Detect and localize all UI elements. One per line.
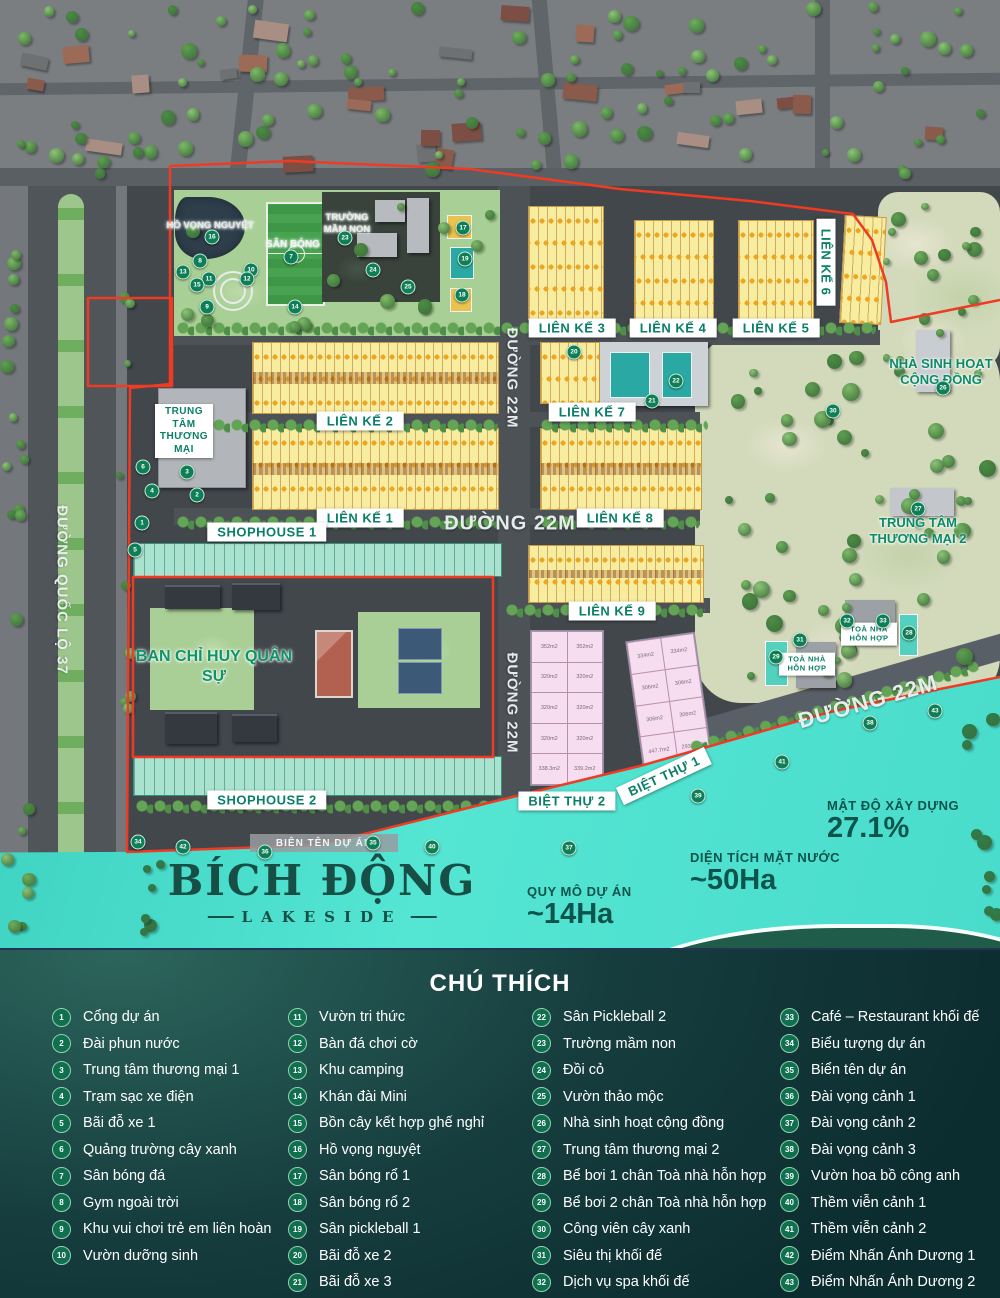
tree <box>178 141 193 156</box>
map-marker-12: 12 <box>240 272 255 287</box>
map-marker-43: 43 <box>928 704 943 719</box>
legend-number: 31 <box>532 1246 551 1265</box>
map-marker-28: 28 <box>902 626 917 641</box>
zone-label: LIÊN KẾ 3 <box>529 319 616 338</box>
legend-number: 33 <box>780 1008 799 1027</box>
map-marker-8: 8 <box>193 254 208 269</box>
villa-plot: 306m2 <box>665 665 701 700</box>
tree <box>827 354 842 369</box>
legend-item-label: Nhà sinh hoạt cộng đồng <box>563 1115 724 1131</box>
legend-item-label: Đài vọng cảnh 1 <box>811 1089 916 1105</box>
legend-number: 28 <box>532 1167 551 1186</box>
map-marker-37: 37 <box>562 841 577 856</box>
map-marker-15: 15 <box>190 278 205 293</box>
zone-label: LIÊN KẾ 5 <box>733 319 820 338</box>
tree <box>262 114 274 126</box>
legend-item-label: Thềm viễn cảnh 1 <box>811 1195 926 1211</box>
legend-number: 15 <box>288 1114 307 1133</box>
legend-item-33: 33Café – Restaurant khối đế <box>780 1004 979 1031</box>
tree <box>161 110 176 125</box>
legend-item-2: 2Đài phun nước <box>52 1031 271 1058</box>
legend-item-20: 20Bãi đỗ xe 2 <box>288 1243 484 1270</box>
legend-item-13: 13Khu camping <box>288 1057 484 1084</box>
block-lk2 <box>252 342 499 414</box>
legend-number: 12 <box>288 1034 307 1053</box>
tree <box>512 31 526 45</box>
stat-label: MẬT ĐỘ XÂY DỰNG <box>827 798 959 813</box>
tree <box>538 132 551 145</box>
zone-label: LIÊN KẾ 7 <box>549 403 636 422</box>
legend-number: 29 <box>532 1193 551 1212</box>
tree <box>776 541 788 553</box>
villa-plot: 320m2 <box>568 663 603 693</box>
tree <box>979 460 996 477</box>
stat: DIỆN TÍCH MẶT NƯỚC~50Ha <box>690 850 840 895</box>
block-lk9 <box>528 545 704 603</box>
block-lk3 <box>528 206 604 320</box>
legend-item-label: Thềm viễn cảnh 2 <box>811 1221 926 1237</box>
tree <box>984 871 995 882</box>
legend-item-label: Hồ vọng nguyệt <box>319 1142 421 1158</box>
tree <box>411 2 424 15</box>
tree <box>125 299 134 308</box>
tree <box>873 28 880 35</box>
tree <box>24 141 36 153</box>
area-label: TRUNG TÂM THƯƠNG MẠI 2 <box>848 515 988 548</box>
tree <box>664 97 673 106</box>
map-marker-33: 33 <box>876 614 891 629</box>
legend-item-30: 30Công viên cây xanh <box>532 1216 766 1243</box>
tree <box>375 108 389 122</box>
legend-item-label: Trung tâm thương mại 1 <box>83 1062 240 1078</box>
block-lk5 <box>738 220 814 322</box>
tree <box>968 295 979 306</box>
legend-item-label: Vườn thảo mộc <box>563 1089 664 1105</box>
zone-label: LIÊN KẾ 4 <box>630 319 717 338</box>
map-marker-40: 40 <box>425 840 440 855</box>
tree <box>250 67 265 82</box>
villa-plot: 320m2 <box>568 693 603 723</box>
legend-number: 16 <box>288 1140 307 1159</box>
legend-item-5: 5Bãi đỗ xe 1 <box>52 1110 271 1137</box>
tree <box>344 65 357 78</box>
villa-plot: 352m2 <box>532 632 567 662</box>
villa-block-2: 352m2352m2320m2320m2320m2320m2320m2320m2… <box>530 630 604 786</box>
tree <box>914 251 928 265</box>
house <box>575 24 594 43</box>
legend-item-label: Đồi cỏ <box>563 1062 604 1078</box>
sign-text: BIÊN TÊN DỰ ÁN <box>276 838 372 849</box>
tree <box>0 360 14 374</box>
map-marker-27: 27 <box>911 502 926 517</box>
legend-number: 25 <box>532 1087 551 1106</box>
tree <box>141 914 150 923</box>
legend-item-label: Sân bóng rổ 2 <box>319 1195 410 1211</box>
legend-number: 24 <box>532 1061 551 1080</box>
tree <box>960 44 973 57</box>
tree <box>920 31 936 47</box>
zone-label: LIÊN KẾ 6 <box>817 219 836 306</box>
tree <box>327 274 340 287</box>
tree <box>691 50 704 63</box>
villa-plot: 320m2 <box>568 724 603 754</box>
tree <box>758 45 766 53</box>
legend-number: 10 <box>52 1246 71 1265</box>
map-marker-41: 41 <box>775 755 790 770</box>
stat: MẬT ĐỘ XÂY DỰNG27.1% <box>827 798 959 843</box>
legend-item-34: 34Biểu tượng dự án <box>780 1031 979 1058</box>
tree <box>986 713 1000 727</box>
house <box>420 130 440 146</box>
legend-item-label: Bãi đỗ xe 3 <box>319 1274 392 1290</box>
legend-number: 42 <box>780 1246 799 1265</box>
hq-building <box>232 583 280 610</box>
legend-item-23: 23Trường mầm non <box>532 1031 766 1058</box>
legend-item-38: 38Đài vọng cảnh 3 <box>780 1137 979 1164</box>
map-marker-35: 35 <box>366 836 381 851</box>
tree <box>388 69 395 76</box>
tree <box>1 853 14 866</box>
house <box>62 45 89 64</box>
tree <box>289 321 300 332</box>
legend-item-29: 29Bể bơi 2 chân Toà nhà hỗn hợp <box>532 1190 766 1217</box>
legend-item-label: Sân bóng đá <box>83 1168 165 1184</box>
legend-number: 4 <box>52 1087 71 1106</box>
tree <box>425 162 439 176</box>
villa-plot: 306m2 <box>632 670 668 705</box>
map-marker-20: 20 <box>567 345 582 360</box>
zone-label: SHOPHOUSE 2 <box>207 791 326 810</box>
legend-item-10: 10Vườn dưỡng sinh <box>52 1243 271 1270</box>
tree <box>438 222 450 234</box>
map-marker-29: 29 <box>769 650 784 665</box>
tree <box>75 133 86 144</box>
legend-item-39: 39Vườn hoa bồ công anh <box>780 1163 979 1190</box>
tree <box>962 724 977 739</box>
map-marker-30: 30 <box>826 404 841 419</box>
legend-item-label: Sân Pickleball 2 <box>563 1009 666 1025</box>
pickleball-court-2 <box>610 352 650 398</box>
area-label: BAN CHỈ HUY QUÂN SỰ <box>134 647 294 687</box>
hq-building <box>232 714 277 742</box>
logo-title: BÍCH ĐỘNG <box>168 860 476 902</box>
hq-building <box>165 712 217 744</box>
map-marker-2: 2 <box>190 488 205 503</box>
legend-column-2: 11Vườn tri thức12Bàn đá chơi cờ13Khu cam… <box>288 1004 484 1296</box>
tree <box>710 115 721 126</box>
tree <box>601 107 613 119</box>
legend-number: 5 <box>52 1114 71 1133</box>
legend-item-label: Vườn dưỡng sinh <box>83 1248 198 1264</box>
map-marker-5: 5 <box>128 543 143 558</box>
legend-number: 9 <box>52 1220 71 1239</box>
tree <box>128 132 140 144</box>
tree <box>990 908 1000 921</box>
legend-number: 13 <box>288 1061 307 1080</box>
legend-item-11: 11Vườn tri thức <box>288 1004 484 1031</box>
map-marker-25: 25 <box>401 280 416 295</box>
tree <box>15 510 26 521</box>
tree <box>919 313 931 325</box>
map-marker-42: 42 <box>176 840 191 855</box>
block-lk4 <box>634 220 714 322</box>
map-marker-21: 21 <box>645 394 660 409</box>
tree <box>742 593 759 610</box>
legend-item-26: 26Nhà sinh hoạt cộng đồng <box>532 1110 766 1137</box>
legend-number: 37 <box>780 1114 799 1133</box>
zone-label: LIÊN KẾ 8 <box>577 509 664 528</box>
map-marker-4: 4 <box>145 484 160 499</box>
legend-item-label: Trung tâm thương mại 2 <box>563 1142 720 1158</box>
legend-item-label: Gym ngoài trời <box>83 1195 179 1211</box>
legend-item-21: 21Bãi đỗ xe 3 <box>288 1269 484 1296</box>
tree <box>841 643 856 658</box>
legend-item-15: 15Bồn cây kết hợp ghế nghỉ <box>288 1110 484 1137</box>
legend-item-label: Bể bơi 1 chân Toà nhà hỗn hợp <box>563 1168 766 1184</box>
legend-item-label: Trạm sạc xe điện <box>83 1089 194 1105</box>
map-marker-36: 36 <box>258 845 273 860</box>
legend-number: 19 <box>288 1220 307 1239</box>
tree <box>44 6 54 16</box>
legend-number: 39 <box>780 1167 799 1186</box>
legend-number: 20 <box>288 1246 307 1265</box>
map-marker-32: 32 <box>840 614 855 629</box>
block-lk1 <box>252 428 499 510</box>
tree <box>678 67 686 75</box>
villa-plot: 306m2 <box>670 697 706 732</box>
map-marker-22: 22 <box>669 374 684 389</box>
legend-item-6: 6Quảng trường cây xanh <box>52 1137 271 1164</box>
tree <box>613 30 622 39</box>
villa-plot: 334m2 <box>628 639 664 674</box>
legend-column-3: 22Sân Pickleball 223Trường mầm non24Đồi … <box>532 1004 766 1296</box>
perimeter-road <box>0 168 1000 188</box>
tree <box>354 243 368 257</box>
villa-plot: 320m2 <box>532 663 567 693</box>
legend-item-37: 37Đài vọng cảnh 2 <box>780 1110 979 1137</box>
block-lk6 <box>839 215 887 325</box>
tree <box>274 72 287 85</box>
legend-item-19: 19Sân pickleball 1 <box>288 1216 484 1243</box>
tree <box>706 69 719 82</box>
tree <box>8 920 21 933</box>
house <box>792 95 811 114</box>
house <box>562 82 598 102</box>
legend-number: 8 <box>52 1193 71 1212</box>
legend-number: 7 <box>52 1167 71 1186</box>
legend-number: 41 <box>780 1220 799 1239</box>
legend-item-27: 27Trung tâm thương mại 2 <box>532 1137 766 1164</box>
tree <box>637 103 647 113</box>
legend-item-label: Sân pickleball 1 <box>319 1221 421 1237</box>
legend-item-1: 1Cổng dự án <box>52 1004 271 1031</box>
tree <box>10 304 18 312</box>
legend-item-label: Trường mầm non <box>563 1036 676 1052</box>
tree <box>749 369 757 377</box>
tree <box>156 860 165 869</box>
legend-item-41: 41Thềm viễn cảnh 2 <box>780 1216 979 1243</box>
villa-plot: 334m2 <box>661 634 697 669</box>
masterplan-page: 352m2352m2320m2320m2320m2320m2320m2320m2… <box>0 0 1000 1298</box>
tree <box>123 703 134 714</box>
legend-item-label: Bể bơi 2 chân Toà nhà hỗn hợp <box>563 1195 766 1211</box>
legend-column-1: 1Cổng dự án2Đài phun nước3Trung tâm thươ… <box>52 1004 271 1269</box>
tree <box>739 148 752 161</box>
stat-value: ~50Ha <box>690 865 840 895</box>
masterplan-map: 352m2352m2320m2320m2320m2320m2320m2320m2… <box>0 0 1000 948</box>
road-label: ĐƯỜNG 22M <box>444 513 576 536</box>
tree <box>11 250 21 260</box>
tree <box>454 89 463 98</box>
block-lk8 <box>540 428 702 510</box>
legend-item-label: Quảng trường cây xanh <box>83 1142 237 1158</box>
legend-item-35: 35Biển tên dự án <box>780 1057 979 1084</box>
map-marker-26: 26 <box>936 381 951 396</box>
legend-item-label: Café – Restaurant khối đế <box>811 1009 979 1025</box>
villa-plot: 306m2 <box>636 702 672 737</box>
tree <box>380 294 395 309</box>
legend-number: 22 <box>532 1008 551 1027</box>
legend-number: 1 <box>52 1008 71 1027</box>
legend-item-25: 25Vườn thảo mộc <box>532 1084 766 1111</box>
map-marker-19: 19 <box>458 252 473 267</box>
tree <box>765 493 775 503</box>
tree <box>883 258 890 265</box>
tree <box>782 432 797 447</box>
stat: QUY MÔ DỰ ÁN~14Ha <box>527 884 632 929</box>
zone-label: TOÀ NHÀ HỖN HỢP <box>779 653 835 676</box>
shophouse-1-row <box>133 543 502 577</box>
legend-number: 36 <box>780 1087 799 1106</box>
legend-number: 23 <box>532 1034 551 1053</box>
legend-item-label: Điểm Nhấn Ánh Dương 1 <box>811 1248 975 1264</box>
tree <box>168 5 177 14</box>
side-road <box>532 0 563 186</box>
tree <box>181 308 194 321</box>
house <box>131 74 150 93</box>
tree <box>818 605 829 616</box>
tree <box>23 803 35 815</box>
tree <box>485 210 495 220</box>
tree <box>181 43 197 59</box>
legend-item-36: 36Đài vọng cảnh 1 <box>780 1084 979 1111</box>
legend-item-18: 18Sân bóng rổ 2 <box>288 1190 484 1217</box>
tree <box>938 249 951 262</box>
legend-item-3: 3Trung tâm thương mại 1 <box>52 1057 271 1084</box>
legend-item-label: Điểm Nhấn Ánh Dương 2 <box>811 1274 975 1290</box>
legend-number: 27 <box>532 1140 551 1159</box>
house <box>683 82 701 93</box>
tree <box>4 317 18 331</box>
tree <box>899 168 910 179</box>
legend-item-16: 16Hồ vọng nguyệt <box>288 1137 484 1164</box>
tree <box>125 691 136 702</box>
tree <box>849 351 863 365</box>
tree <box>178 78 187 87</box>
legend-item-label: Bồn cây kết hợp ghế nghỉ <box>319 1115 484 1131</box>
tree <box>564 154 578 168</box>
legend-number: 6 <box>52 1140 71 1159</box>
tree <box>307 104 321 118</box>
tree <box>133 147 144 158</box>
tree <box>187 108 199 120</box>
tree <box>873 81 884 92</box>
tree <box>95 168 105 178</box>
tree <box>22 873 36 887</box>
legend-number: 14 <box>288 1087 307 1106</box>
legend-item-7: 7Sân bóng đá <box>52 1163 271 1190</box>
tree <box>842 603 851 612</box>
legend-item-12: 12Bàn đá chơi cờ <box>288 1031 484 1058</box>
legend-item-14: 14Khán đài Mini <box>288 1084 484 1111</box>
road-ql37 <box>28 186 116 948</box>
tree <box>890 34 900 44</box>
tree <box>143 865 151 873</box>
map-marker-6: 6 <box>136 460 151 475</box>
zone-label: LIÊN KẾ 2 <box>317 412 404 431</box>
house <box>500 5 529 22</box>
stat-label: QUY MÔ DỰ ÁN <box>527 884 632 899</box>
tennis-court-2 <box>398 662 442 694</box>
tree <box>623 16 638 31</box>
legend-item-9: 9Khu vui chơi trẻ em liên hoàn <box>52 1216 271 1243</box>
legend-panel: CHÚ THÍCH 1Cổng dự án2Đài phun nước3Trun… <box>0 948 1000 1298</box>
legend-number: 2 <box>52 1034 71 1053</box>
stat-label: DIỆN TÍCH MẶT NƯỚC <box>690 850 840 865</box>
project-logo: BÍCH ĐỘNG LAKESIDE <box>168 860 476 926</box>
tree <box>837 672 852 687</box>
side-road <box>815 0 830 186</box>
legend-number: 21 <box>288 1273 307 1292</box>
legend-item-31: 31Siêu thị khối đế <box>532 1243 766 1270</box>
legend-item-label: Khu camping <box>319 1062 404 1078</box>
map-marker-39: 39 <box>691 789 706 804</box>
map-marker-34: 34 <box>131 835 146 850</box>
side-road <box>0 73 1000 95</box>
villa-plot: 320m2 <box>532 693 567 723</box>
legend-item-label: Bãi đỗ xe 1 <box>83 1115 156 1131</box>
tree <box>144 145 158 159</box>
tree <box>418 299 432 313</box>
legend-item-label: Biểu tượng dự án <box>811 1036 925 1052</box>
map-marker-14: 14 <box>288 300 303 315</box>
tree <box>276 43 291 58</box>
legend-item-label: Siêu thị khối đế <box>563 1248 662 1264</box>
tree <box>781 414 793 426</box>
legend-item-label: Khu vui chơi trẻ em liên hoàn <box>83 1221 271 1237</box>
logo-subtitle: LAKESIDE <box>168 908 476 926</box>
legend-number: 35 <box>780 1061 799 1080</box>
legend-number: 26 <box>532 1114 551 1133</box>
legend-item-24: 24Đồi cỏ <box>532 1057 766 1084</box>
tree <box>238 131 253 146</box>
tree <box>304 10 315 21</box>
villa-plot: 352m2 <box>568 632 603 662</box>
map-marker-23: 23 <box>338 231 353 246</box>
tree <box>842 548 857 563</box>
tree <box>766 615 783 632</box>
legend-number: 30 <box>532 1220 551 1239</box>
map-marker-38: 38 <box>863 716 878 731</box>
legend-title: CHÚ THÍCH <box>430 970 571 998</box>
legend-item-label: Bàn đá chơi cờ <box>319 1036 418 1052</box>
tree <box>938 42 951 55</box>
tree <box>901 67 908 74</box>
tree <box>754 387 762 395</box>
tree <box>457 78 465 86</box>
legend-item-label: Sân bóng rổ 1 <box>319 1168 410 1184</box>
tree <box>928 423 944 439</box>
